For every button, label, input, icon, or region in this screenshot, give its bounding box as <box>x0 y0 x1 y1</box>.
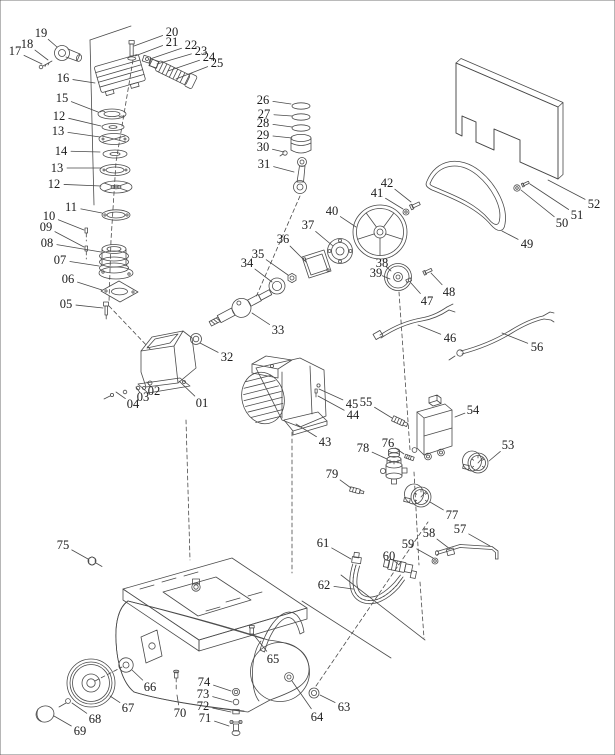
part-label-33: 33 <box>272 323 285 337</box>
leader-line-66 <box>132 670 143 680</box>
part-label-05: 05 <box>60 297 73 311</box>
leader-line-32 <box>200 343 218 352</box>
part-label-06: 06 <box>62 272 75 286</box>
leader-line-50 <box>521 190 554 217</box>
leader-line-71 <box>214 721 229 726</box>
leader-line-07 <box>70 262 99 266</box>
pressure-switch-part-54 <box>412 395 452 460</box>
cylinder-part-07-08 <box>99 245 133 280</box>
part-label-12: 12 <box>53 109 66 123</box>
valve-plate-stack <box>99 124 132 194</box>
part-label-39: 39 <box>370 266 383 280</box>
leader-line-12 <box>69 118 101 126</box>
leader-line-58 <box>437 539 450 549</box>
gasket-part-06 <box>101 281 138 302</box>
outlet-pipe-part-57 <box>435 545 498 560</box>
pulley-part-38-39 <box>385 264 412 291</box>
part-label-60: 60 <box>383 549 396 563</box>
part-label-48: 48 <box>443 285 456 299</box>
part-label-52: 52 <box>588 197 601 211</box>
nut-part-35 <box>288 273 296 282</box>
leader-line-48 <box>431 273 442 285</box>
leader-line-30 <box>272 149 284 152</box>
leader-line-31 <box>274 167 294 172</box>
part-label-14: 14 <box>55 144 68 158</box>
leader-line-20 <box>134 35 163 46</box>
part-label-42: 42 <box>381 176 394 190</box>
bolt-part-20-21 <box>128 41 136 61</box>
leader-line-19 <box>48 39 57 47</box>
leader-line-59 <box>417 549 433 558</box>
part-label-47: 47 <box>421 294 434 308</box>
leader-line-44 <box>318 396 344 410</box>
leader-line-61 <box>332 548 351 559</box>
part-label-68: 68 <box>89 712 102 726</box>
part-label-07: 07 <box>54 253 67 267</box>
leader-line-10 <box>58 220 84 230</box>
part-label-75: 75 <box>57 538 70 552</box>
part-label-15: 15 <box>56 91 69 105</box>
part-label-79: 79 <box>326 467 339 481</box>
part-label-11: 11 <box>65 200 77 214</box>
part-label-77: 77 <box>446 508 459 522</box>
part-label-40: 40 <box>326 204 339 218</box>
screw-part-48 <box>423 268 433 276</box>
cover-plate-part-36 <box>302 250 331 278</box>
leader-line-55 <box>375 407 392 418</box>
screw-part-50-51 <box>514 181 530 192</box>
leader-line-29 <box>273 136 292 138</box>
bolt-part-09-10 <box>85 228 88 259</box>
background <box>0 0 615 755</box>
elbow-fitting-part-58 <box>446 548 454 556</box>
bolt-part-70 <box>174 670 179 692</box>
leader-line-37 <box>316 231 333 246</box>
leader-line-14 <box>71 151 100 152</box>
discharge-hose-part-62 <box>350 564 405 604</box>
v-belt-part-49 <box>426 161 505 230</box>
part-label-12: 12 <box>48 177 61 191</box>
part-label-50: 50 <box>556 216 569 230</box>
leader-line-56 <box>502 333 528 343</box>
part-label-04: 04 <box>127 397 140 411</box>
leader-line-42 <box>395 189 411 202</box>
part-label-56: 56 <box>531 340 544 354</box>
leader-line-18 <box>35 50 48 60</box>
leader-line-53 <box>489 451 500 461</box>
part-label-69: 69 <box>74 724 87 738</box>
part-label-18: 18 <box>21 37 34 51</box>
leader-line-41 <box>386 198 403 209</box>
part-label-70: 70 <box>174 706 187 720</box>
plug-part-75 <box>88 557 102 567</box>
leader-line-33 <box>252 313 270 325</box>
part-label-64: 64 <box>311 710 324 724</box>
leader-line-49 <box>502 231 518 239</box>
leader-line-54 <box>455 413 465 417</box>
part-label-78: 78 <box>357 441 370 455</box>
part-label-63: 63 <box>338 700 351 714</box>
part-label-09: 09 <box>40 220 53 234</box>
part-label-49: 49 <box>521 237 534 251</box>
connecting-rod-part-31 <box>294 158 307 194</box>
leader-line-35 <box>266 260 288 275</box>
part-label-01: 01 <box>196 396 209 410</box>
piston-rings-part-26-27-28 <box>292 103 310 131</box>
pressure-gauge-part-77 <box>404 484 431 507</box>
part-label-02: 02 <box>148 384 161 398</box>
belt-guard-grille-part-52 <box>456 59 563 180</box>
part-label-61: 61 <box>317 536 330 550</box>
pressure-gauge-part-53 <box>463 451 489 473</box>
screw-part-42 <box>410 201 421 210</box>
exploded-parts-diagram: 1718191615121314131211100908070605202122… <box>0 0 615 755</box>
part-label-57: 57 <box>454 522 467 536</box>
part-label-58: 58 <box>423 526 436 540</box>
leader-line-75 <box>72 550 88 559</box>
wheel-part-67 <box>67 659 122 707</box>
leader-line-47 <box>411 283 420 294</box>
part-label-59: 59 <box>402 537 415 551</box>
bearing-part-34 <box>269 278 285 294</box>
part-label-67: 67 <box>122 701 135 715</box>
part-label-76: 76 <box>382 436 395 450</box>
part-label-51: 51 <box>571 208 584 222</box>
part-label-46: 46 <box>444 331 457 345</box>
part-label-53: 53 <box>502 438 515 452</box>
bolt-part-65 <box>249 626 254 635</box>
part-label-71: 71 <box>199 711 212 725</box>
part-label-08: 08 <box>41 236 54 250</box>
part-label-16: 16 <box>57 71 70 85</box>
leader-line-73 <box>213 697 232 702</box>
part-label-25: 25 <box>211 56 224 70</box>
motor-part-43 <box>236 356 327 435</box>
piston-part-29 <box>291 134 311 153</box>
leader-line-77 <box>430 502 443 510</box>
part-label-21: 21 <box>166 35 179 49</box>
leader-line-67 <box>110 696 120 703</box>
leader-line-05 <box>76 305 103 308</box>
part-label-19: 19 <box>35 26 48 40</box>
washer-part-41 <box>403 209 409 215</box>
part-label-36: 36 <box>277 232 290 246</box>
fitting-part-76 <box>405 454 415 460</box>
part-label-32: 32 <box>221 350 234 364</box>
intake-valve-part-19 <box>55 46 83 63</box>
leader-line-17 <box>24 55 42 64</box>
nut-part-59 <box>432 558 438 564</box>
tank-foot <box>141 630 162 663</box>
hose-fitting-part-61 <box>352 552 362 563</box>
screw-part-68 <box>59 699 70 707</box>
cylinder-head-part-16 <box>94 54 147 96</box>
crankcase-part-01 <box>138 331 196 393</box>
part-label-31: 31 <box>258 157 271 171</box>
part-label-13: 13 <box>52 124 65 138</box>
part-label-54: 54 <box>467 403 480 417</box>
leader-line-26 <box>273 101 291 104</box>
leader-line-11 <box>81 209 102 213</box>
part-label-74: 74 <box>198 675 211 689</box>
seal-flange-part-37 <box>328 239 353 264</box>
fitting-part-55 <box>392 416 409 428</box>
leader-line-08 <box>57 245 101 252</box>
leader-line-68 <box>72 703 87 713</box>
leader-line-15 <box>71 102 98 112</box>
leader-line-43 <box>296 424 317 437</box>
leader-line-74 <box>213 685 231 691</box>
leader-line-63 <box>320 695 335 703</box>
part-label-30: 30 <box>257 140 270 154</box>
leader-line-24 <box>168 60 200 71</box>
leader-line-22 <box>150 48 182 59</box>
leader-line-23 <box>157 54 191 64</box>
tank-handle <box>260 612 304 652</box>
part-label-17: 17 <box>9 44 22 58</box>
leader-line-27 <box>274 115 292 116</box>
gasket-part-15 <box>98 109 126 119</box>
leader-line-13 <box>68 132 100 137</box>
air-filter-part-24-25 <box>148 56 197 90</box>
part-label-62: 62 <box>318 578 331 592</box>
leader-line-12 <box>64 184 101 186</box>
part-label-26: 26 <box>257 93 270 107</box>
flywheel-part-40 <box>353 205 407 259</box>
screw-part-17-18 <box>39 61 52 69</box>
part-label-45: 45 <box>346 397 359 411</box>
leader-line-70 <box>177 695 179 705</box>
part-label-35: 35 <box>252 247 265 261</box>
leader-line-78 <box>372 452 387 459</box>
leader-line-46 <box>418 325 441 334</box>
part-labels: 1718191615121314131211100908070605202122… <box>9 25 601 738</box>
leader-line-57 <box>469 534 490 546</box>
leader-line-69 <box>54 716 71 726</box>
leader-line-28 <box>273 124 292 127</box>
leader-line-06 <box>78 282 102 290</box>
part-label-37: 37 <box>302 218 315 232</box>
leader-line-36 <box>290 246 306 262</box>
leader-line-52 <box>548 180 585 199</box>
crankshaft-part-33 <box>206 284 275 333</box>
cap-part-69 <box>34 704 56 724</box>
part-label-65: 65 <box>267 652 280 666</box>
platform-plate <box>123 558 307 651</box>
fitting-part-79 <box>350 487 365 495</box>
bolt-part-05 <box>104 302 109 322</box>
part-label-43: 43 <box>319 435 332 449</box>
leader-line-39 <box>382 276 390 279</box>
leader-line-21 <box>135 46 163 56</box>
drain-valve-parts-71-74 <box>230 688 242 735</box>
part-label-55: 55 <box>360 395 373 409</box>
plug-part-63 <box>309 688 319 698</box>
leader-line-79 <box>340 480 351 488</box>
part-label-72: 72 <box>197 699 210 713</box>
washer-part-66 <box>119 658 133 672</box>
part-label-13: 13 <box>51 161 64 175</box>
diagram-canvas: 1718191615121314131211100908070605202122… <box>0 0 615 755</box>
leader-line-40 <box>340 217 356 227</box>
part-label-66: 66 <box>144 680 157 694</box>
drain-boss-part-64 <box>285 673 294 682</box>
gasket-part-11 <box>102 210 130 220</box>
power-cable-part-46 <box>373 304 455 340</box>
leader-line-16 <box>73 80 95 83</box>
part-label-73: 73 <box>197 687 210 701</box>
